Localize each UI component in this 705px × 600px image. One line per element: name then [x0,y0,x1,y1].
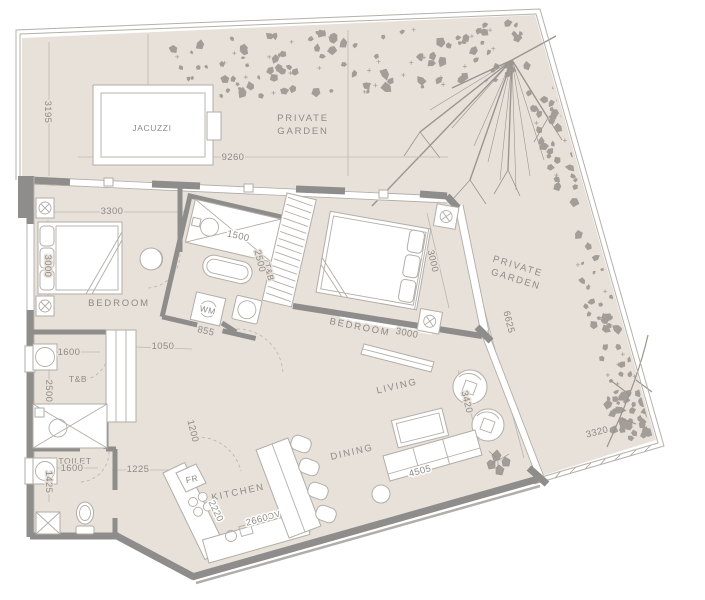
floorplan-svg: 1500 WM [0,0,705,600]
sink-symbol [232,295,263,324]
dim-jacuzzi-depth: 3195 [42,101,53,124]
dim-tb-left-depth: 2500 [43,380,54,403]
floor-plan-page: 1500 WM [0,0,705,600]
dim-toilet-depth: 1425 [43,471,54,494]
label-private-garden-top-1: PRIVATE [277,113,329,124]
wardrobe [106,330,136,422]
label-bedroom-left: BEDROOM [88,298,150,309]
dim-tb-left-width: 1600 [58,347,81,358]
dim-hall-width: 1050 [152,341,175,352]
dim-garden-top-width: 9260 [222,152,245,163]
label-tb-left: T&B [69,374,87,384]
dim-bedroom-left-depth: 3000 [42,255,53,278]
dim-toilet-width: 1600 [61,463,84,474]
dim-bedroom-left-width: 3300 [101,206,124,217]
label-private-garden-top-2: GARDEN [277,126,328,137]
dim-hall-bottom-width: 1225 [127,464,150,475]
side-table [372,485,390,503]
chair-symbol [140,248,162,270]
wc-symbol [76,502,94,534]
label-jacuzzi: JACUZZI [132,123,171,133]
